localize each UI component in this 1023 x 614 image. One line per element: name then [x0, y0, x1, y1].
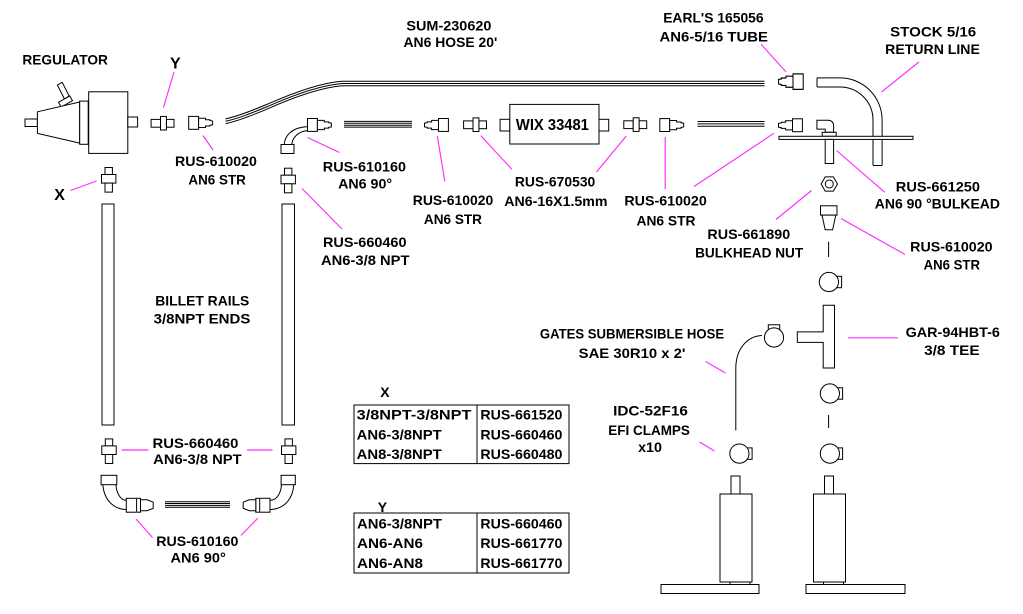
svg-text:WIX 33481: WIX 33481 [516, 117, 589, 134]
svg-text:AN6 HOSE 20': AN6 HOSE 20' [404, 34, 498, 50]
svg-text:GAR-94HBT-6: GAR-94HBT-6 [906, 324, 1001, 340]
svg-text:AN6-3/8 NPT: AN6-3/8 NPT [321, 252, 410, 268]
svg-text:AN6 STR: AN6 STR [637, 213, 696, 229]
svg-text:RUS-660460: RUS-660460 [323, 234, 407, 250]
svg-text:RUS-661520: RUS-661520 [480, 407, 562, 423]
svg-text:3/8NPT-3/8NPT: 3/8NPT-3/8NPT [357, 407, 472, 423]
svg-text:AN6 STR: AN6 STR [188, 171, 246, 187]
svg-text:RUS-670530: RUS-670530 [515, 173, 596, 189]
svg-text:IDC-52F16: IDC-52F16 [613, 402, 688, 418]
svg-text:AN6 STR: AN6 STR [924, 256, 980, 272]
svg-text:REGULATOR: REGULATOR [22, 52, 108, 68]
svg-text:BULKHEAD NUT: BULKHEAD NUT [695, 245, 804, 261]
svg-text:RUS-610160: RUS-610160 [323, 158, 406, 174]
svg-text:3/8 TEE: 3/8 TEE [924, 342, 980, 358]
svg-text:STOCK 5/16: STOCK 5/16 [890, 23, 976, 39]
svg-text:RUS-610020: RUS-610020 [910, 238, 993, 254]
svg-text:AN6 90 °BULKEAD: AN6 90 °BULKEAD [875, 196, 1000, 212]
svg-text:RUS-661770: RUS-661770 [480, 535, 562, 551]
svg-text:AN6 90°: AN6 90° [338, 176, 392, 192]
svg-text:AN6-3/8NPT: AN6-3/8NPT [357, 515, 442, 531]
svg-text:SUM-230620: SUM-230620 [406, 18, 491, 34]
svg-text:AN6 STR: AN6 STR [424, 211, 482, 227]
svg-text:RETURN LINE: RETURN LINE [885, 41, 980, 57]
svg-text:AN6-16X1.5mm: AN6-16X1.5mm [504, 193, 607, 209]
svg-text:x10: x10 [638, 439, 662, 455]
svg-text:AN6-3/8NPT: AN6-3/8NPT [357, 426, 442, 442]
svg-text:X: X [54, 187, 65, 204]
svg-text:RUS-610160: RUS-610160 [156, 533, 238, 549]
svg-text:AN6-3/8 NPT: AN6-3/8 NPT [153, 451, 242, 467]
svg-text:AN8-3/8NPT: AN8-3/8NPT [357, 446, 442, 462]
svg-text:RUS-610020: RUS-610020 [624, 193, 707, 209]
svg-text:GATES SUBMERSIBLE HOSE: GATES SUBMERSIBLE HOSE [540, 325, 724, 341]
svg-text:AN6-AN6: AN6-AN6 [357, 535, 423, 551]
svg-text:RUS-660460: RUS-660460 [153, 435, 239, 451]
svg-text:AN6 90°: AN6 90° [171, 550, 226, 566]
svg-text:AN6-5/16 TUBE: AN6-5/16 TUBE [660, 29, 769, 45]
svg-text:SAE 30R10 x 2': SAE 30R10 x 2' [579, 345, 686, 361]
svg-text:RUS-660460: RUS-660460 [480, 515, 562, 531]
svg-text:EFI CLAMPS: EFI CLAMPS [608, 422, 690, 438]
svg-text:RUS-660460: RUS-660460 [480, 426, 562, 442]
svg-text:AN6-AN8: AN6-AN8 [357, 555, 423, 571]
svg-text:RUS-610020: RUS-610020 [413, 192, 494, 208]
svg-text:RUS-610020: RUS-610020 [175, 153, 257, 169]
svg-text:BILLET RAILS: BILLET RAILS [155, 293, 249, 309]
svg-text:EARL'S 165056: EARL'S 165056 [663, 9, 764, 25]
svg-text:3/8NPT ENDS: 3/8NPT ENDS [154, 311, 251, 327]
svg-text:RUS-661250: RUS-661250 [896, 178, 980, 194]
svg-text:RUS-661890: RUS-661890 [707, 226, 790, 242]
svg-text:Y: Y [170, 56, 181, 73]
svg-text:X: X [380, 384, 390, 400]
svg-text:RUS-660480: RUS-660480 [480, 446, 562, 462]
svg-text:RUS-661770: RUS-661770 [480, 555, 562, 571]
